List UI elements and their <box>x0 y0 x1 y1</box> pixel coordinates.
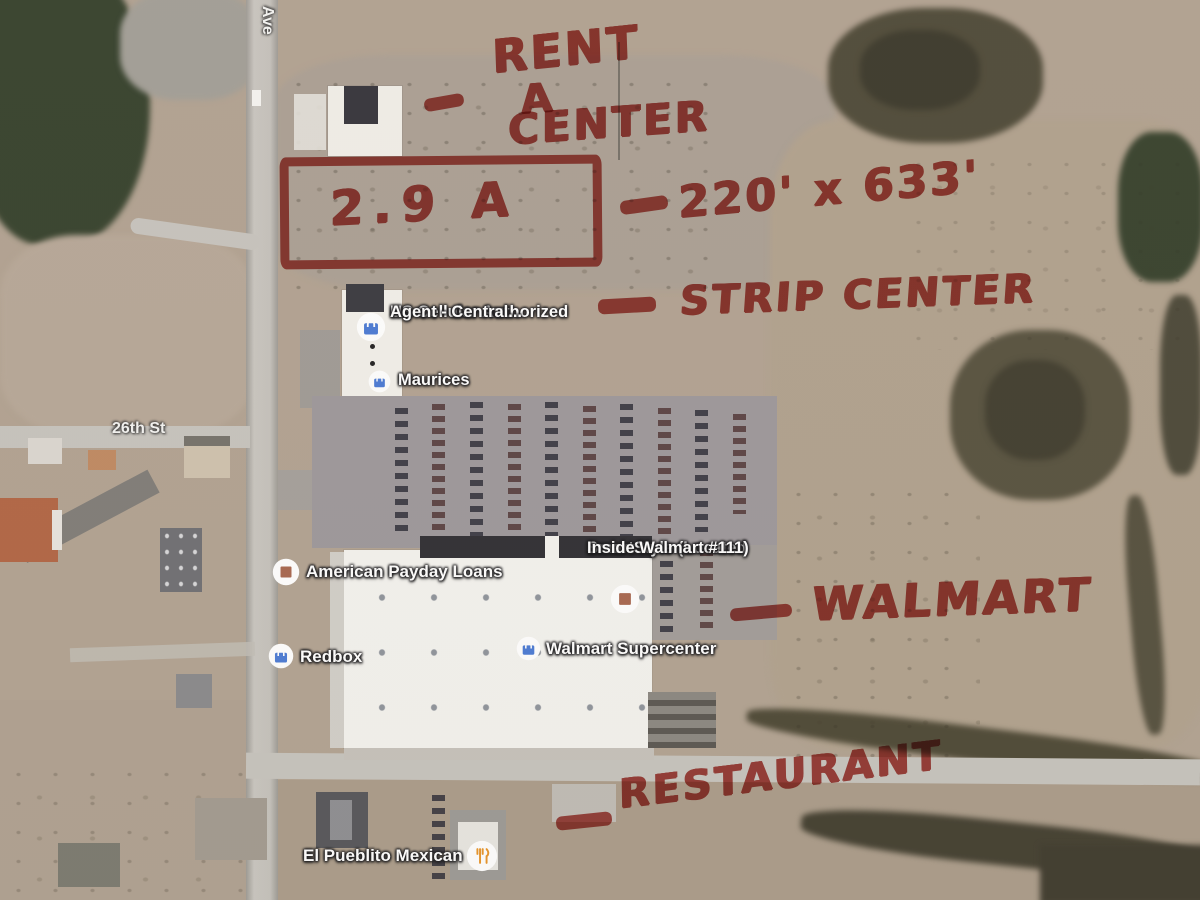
terrain-field <box>120 0 260 100</box>
building-roof-stripe <box>330 800 352 840</box>
shopping-bag-icon <box>516 636 541 661</box>
house <box>28 438 62 464</box>
parking-row <box>508 404 521 538</box>
annotated-satellite-map: Ave 26th St US Cellular Authorized Agent… <box>0 0 1200 900</box>
parking-row <box>658 408 671 534</box>
building-roof <box>184 436 230 446</box>
parking-row <box>432 795 445 880</box>
parking-row <box>620 404 633 536</box>
parking-row <box>660 548 673 636</box>
walmart-loading-dock <box>648 692 716 748</box>
poi-label-line: Agent - Central... <box>390 302 522 323</box>
parking-row <box>395 408 408 536</box>
store-icon <box>610 584 640 614</box>
parking-row <box>545 402 558 538</box>
walmart-roofline-gap <box>545 536 559 558</box>
gray-building <box>160 528 202 592</box>
poi-label-maurices: Maurices <box>398 370 470 391</box>
building <box>195 798 267 860</box>
road-label-26th-st: 26th St <box>112 420 165 438</box>
road-label-ave: Ave <box>258 6 276 35</box>
orange-roof-building <box>0 498 58 562</box>
small-building <box>176 674 212 708</box>
annotation-dash <box>598 296 657 314</box>
poi-label-american-payday-loans: American Payday Loans <box>306 561 503 582</box>
vehicle <box>252 90 261 106</box>
store-icon <box>272 558 300 586</box>
driveway <box>70 642 255 662</box>
sidewalk <box>344 748 654 760</box>
poi-dot <box>370 361 375 366</box>
poi-label-line: Inside Walmart #111) <box>587 538 749 559</box>
parking-row <box>470 402 483 538</box>
shopping-bag-icon <box>268 643 294 669</box>
annotation-walmart: WALMART <box>810 567 1094 631</box>
annotation-parcel-area: 2.9 A <box>330 171 520 237</box>
restaurant-icon <box>466 840 498 872</box>
tree-cluster <box>985 360 1085 460</box>
poi-label-redbox: Redbox <box>300 646 362 667</box>
parking-row <box>695 410 708 532</box>
poi-dot <box>370 344 375 349</box>
poi-label-walmart-supercenter: Walmart Supercenter <box>546 638 716 659</box>
building <box>58 843 120 887</box>
terrain-field <box>0 235 255 435</box>
canopy <box>294 94 326 150</box>
parking-row <box>733 414 746 514</box>
poi-label-el-pueblito: El Pueblito Mexican <box>303 845 463 866</box>
strip-center-roof <box>346 284 384 312</box>
parking-row <box>583 406 596 536</box>
tree-cluster <box>1040 845 1200 900</box>
parking-row <box>700 550 713 632</box>
shopping-bag-icon <box>368 370 391 393</box>
tree-cluster <box>860 30 980 110</box>
house <box>88 450 116 470</box>
shopping-bag-icon <box>356 312 386 342</box>
rent-a-center-roof <box>344 86 378 124</box>
parking-row <box>432 404 445 536</box>
building-trim <box>52 510 62 550</box>
